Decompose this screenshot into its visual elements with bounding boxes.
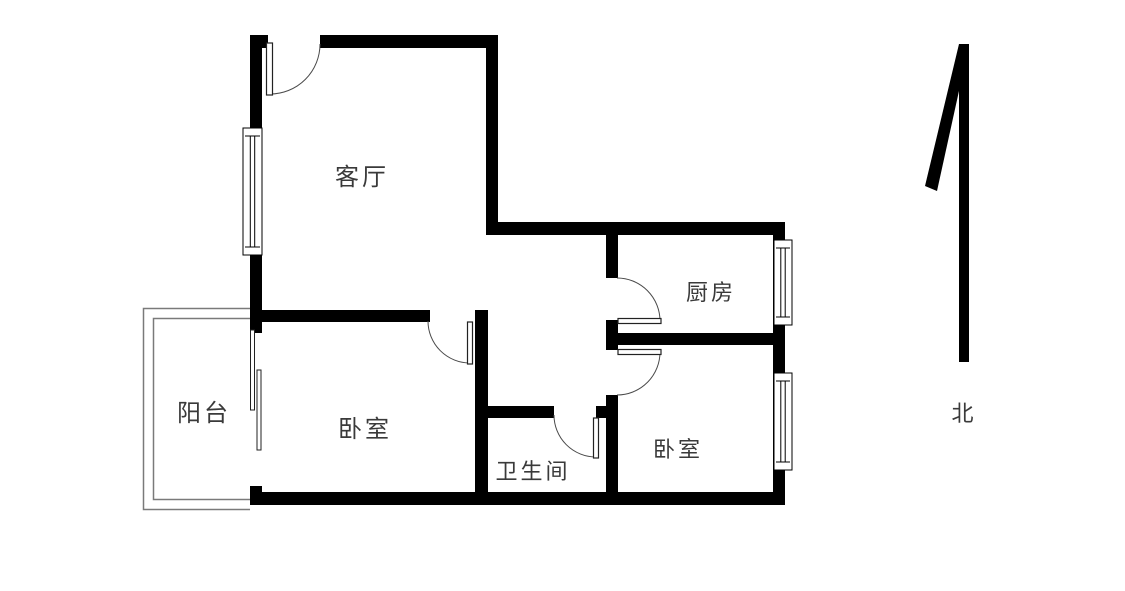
wall-hall-east-lower: [606, 395, 618, 505]
wall-kitchen-south: [608, 333, 785, 345]
window-living-room: [243, 128, 262, 255]
room-label-bedroom-west: 卧室: [338, 417, 392, 441]
room-label-living-room: 客厅: [335, 165, 389, 189]
door-entry-swing-arc: [270, 44, 320, 94]
door-entry-leaf: [267, 43, 273, 95]
door-bedroom-west-leaf: [468, 322, 473, 364]
floor-plan: 客厅 厨房 阳台 卧室 卫生间 卧室 北: [0, 0, 1125, 591]
wall-livingroom-east: [486, 35, 498, 235]
wall-balcony-stub: [250, 486, 262, 505]
room-label-balcony: 阳台: [177, 401, 231, 425]
door-bedroom-east-swing-arc: [617, 352, 660, 395]
door-bathroom-swing-arc: [554, 415, 596, 457]
floor-plan-canvas: [0, 0, 1125, 591]
window-kitchen: [774, 240, 792, 325]
wall-hall-east-mid: [606, 320, 618, 350]
door-kitchen-leaf: [618, 319, 661, 324]
room-label-bathroom: 卫生间: [495, 462, 570, 484]
wall-bedroom-west-north: [250, 310, 430, 322]
door-kitchen-swing-arc: [617, 278, 660, 321]
room-label-kitchen: 厨房: [686, 283, 736, 305]
door-bedroom-west-swing-arc: [428, 321, 470, 363]
wall-kitchen-north: [486, 222, 785, 235]
sliding-panel-b: [257, 370, 261, 450]
window-bedroom-east: [774, 373, 792, 470]
room-label-bedroom-east: 卧室: [653, 440, 703, 462]
wall-south: [250, 492, 785, 505]
wall-hall-east-upper: [606, 235, 618, 278]
north-label: 北: [951, 404, 976, 426]
wall-bathroom-north: [488, 406, 554, 418]
door-bedroom-east-leaf: [618, 350, 661, 355]
wall-mid-vertical: [475, 310, 488, 505]
sliding-panel-a: [251, 330, 255, 410]
north-arrow-shaft: [959, 44, 969, 362]
wall-top-right: [320, 35, 498, 48]
door-bathroom-leaf: [594, 418, 599, 458]
